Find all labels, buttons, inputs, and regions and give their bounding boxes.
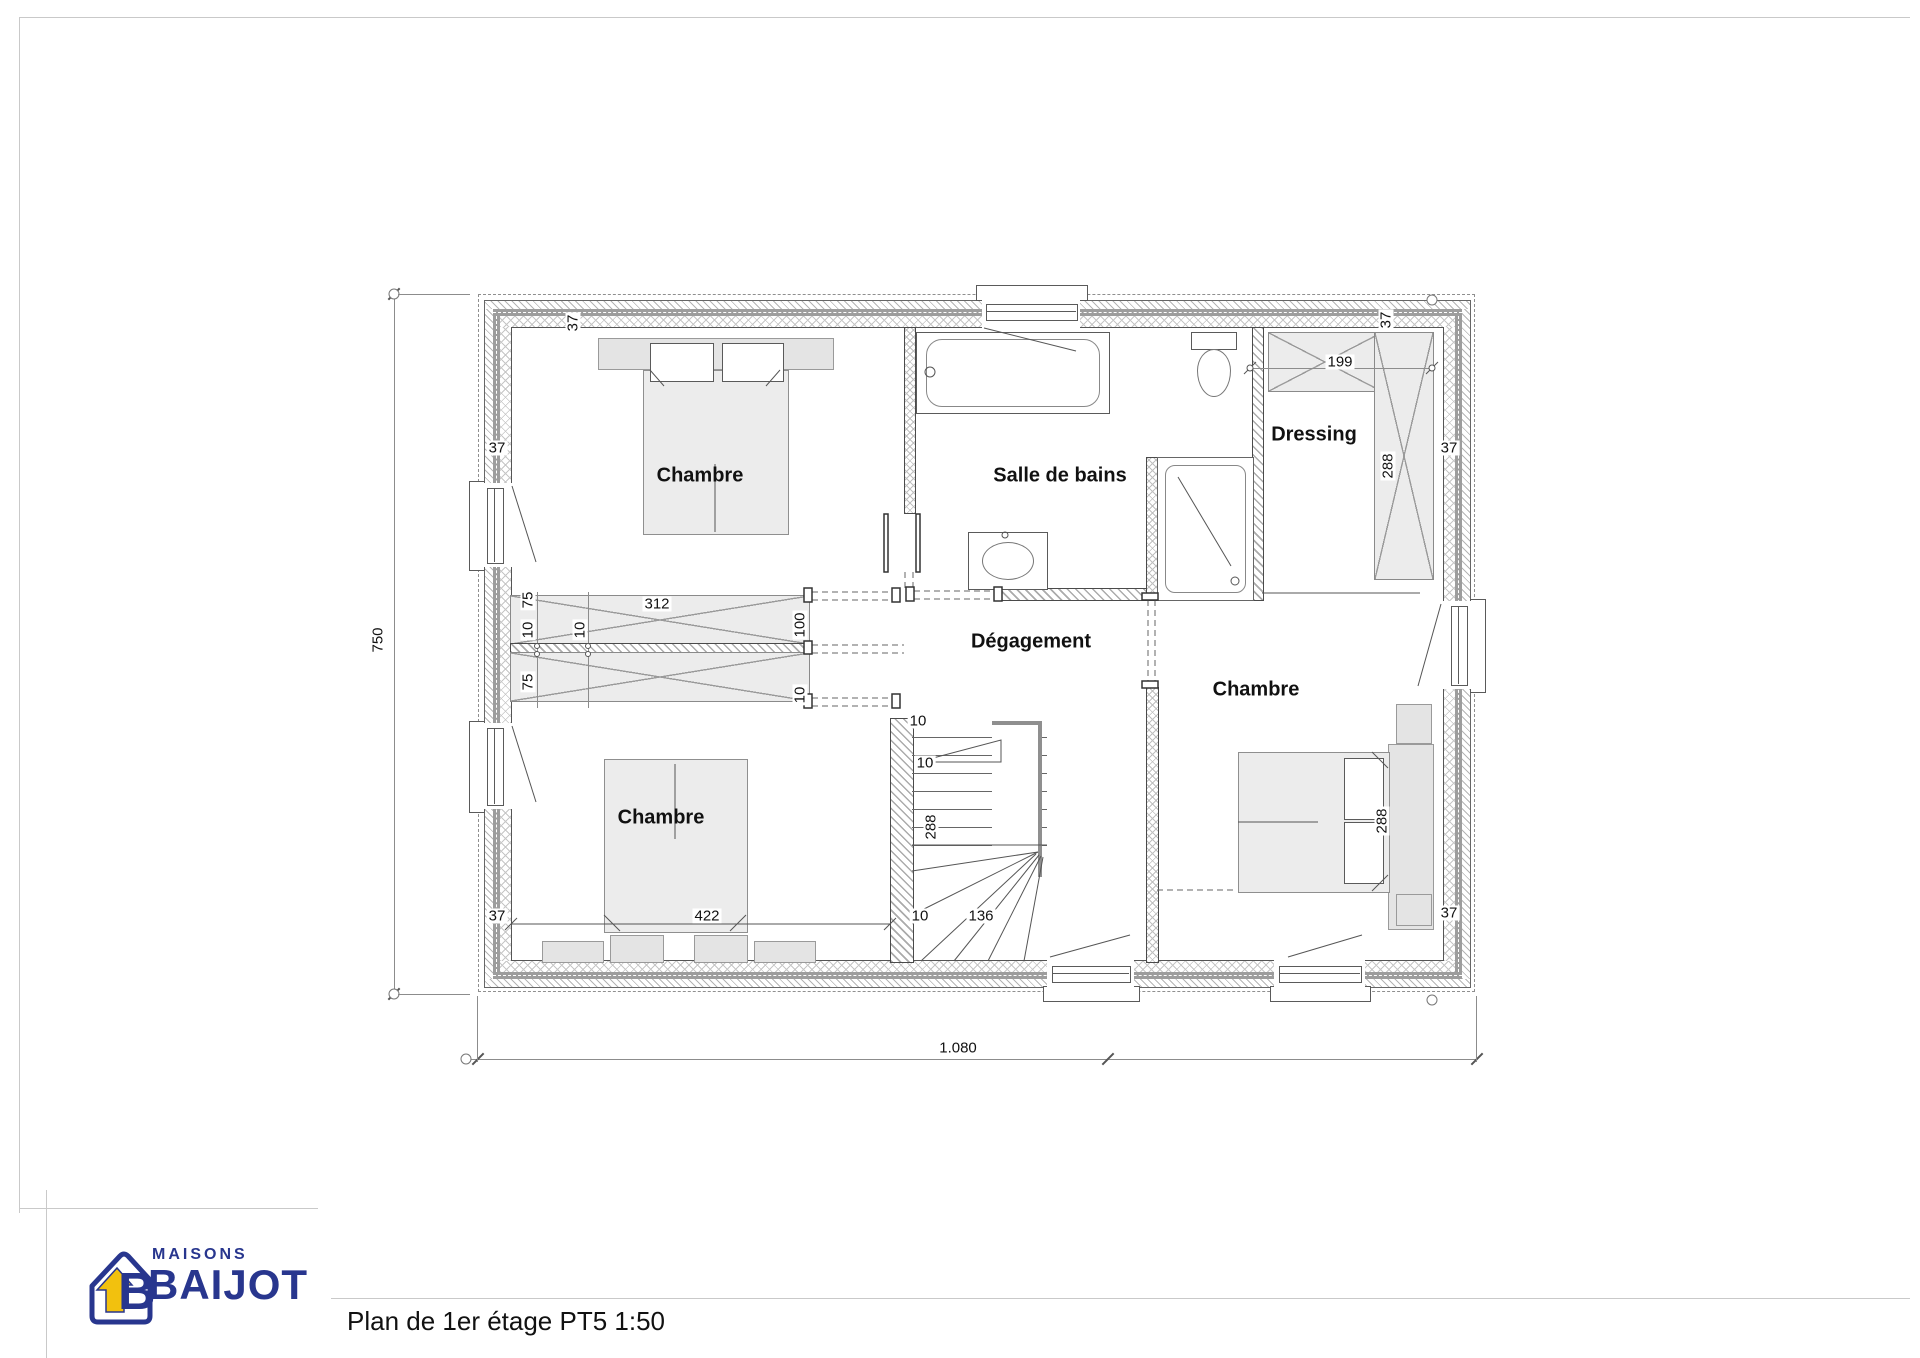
sheet-border-left xyxy=(19,17,20,1213)
room-label-degagement: Dégagement xyxy=(971,631,1091,654)
axis-marker-bottom-right xyxy=(1427,995,1438,1006)
titleblock-rule xyxy=(331,1298,1910,1299)
dim-10-b: 10 xyxy=(573,620,588,641)
dim-10-stair-b: 10 xyxy=(915,756,936,771)
sheet-border-top xyxy=(19,17,1910,18)
dim-dressing-width: 199 xyxy=(1325,355,1354,370)
drawing-sheet: Chambre Salle de bains Dressing Dégageme… xyxy=(0,0,1920,1358)
dim-total-height: 750 xyxy=(371,625,386,654)
dim-wall-bottom-left: 37 xyxy=(487,909,508,924)
dim-total-width: 1.080 xyxy=(937,1041,979,1056)
sheet-title: Plan de 1er étage PT5 1:50 xyxy=(347,1306,665,1337)
room-label-salle-de-bains: Salle de bains xyxy=(993,465,1126,488)
dim-stair-depth: 288 xyxy=(924,812,939,841)
dim-10-stair-a: 10 xyxy=(908,714,929,729)
dim-width-ext-right xyxy=(1476,996,1477,1062)
dim-width-line xyxy=(466,1059,1477,1060)
dim-wall-left: 37 xyxy=(487,441,508,456)
room-label-chambre-bl: Chambre xyxy=(618,807,705,830)
axis-marker-top-right xyxy=(1427,295,1438,306)
dim-opening-100: 100 xyxy=(793,610,808,639)
room-label-dressing: Dressing xyxy=(1271,424,1357,447)
dim-height-ext-top xyxy=(398,294,470,295)
logo-word-main: BAIJOT xyxy=(148,1264,308,1306)
dim-stair-width: 136 xyxy=(966,909,995,924)
titleblock-hline xyxy=(19,1208,318,1209)
dim-wall-top-left: 37 xyxy=(566,313,581,334)
dim-dressing-side: 288 xyxy=(1381,451,1396,480)
dim-width-ext-left xyxy=(477,996,478,1062)
dim-bed-side: 288 xyxy=(1375,806,1390,835)
dim-height-line xyxy=(394,294,395,994)
dim-beam-75-top: 75 xyxy=(521,590,536,611)
dim-wall-top-right: 37 xyxy=(1379,310,1394,331)
dim-10-c: 10 xyxy=(793,685,808,706)
titleblock-vline xyxy=(46,1190,47,1358)
dim-10-a: 10 xyxy=(521,620,536,641)
dim-wall-right: 37 xyxy=(1439,441,1460,456)
dim-width-marker-left xyxy=(461,1054,472,1065)
dim-room-width: 422 xyxy=(692,909,721,924)
dim-10-stair-c: 10 xyxy=(910,909,931,924)
dim-wall-bottom-right: 37 xyxy=(1439,906,1460,921)
room-label-chambre-droite: Chambre xyxy=(1213,679,1300,702)
dim-beam-length: 312 xyxy=(642,597,671,612)
room-label-chambre-tl: Chambre xyxy=(657,465,744,488)
floor-plan: Chambre Salle de bains Dressing Dégageme… xyxy=(478,294,1477,994)
dim-beam-75-bottom: 75 xyxy=(521,672,536,693)
dim-height-ext-bottom xyxy=(398,994,470,995)
